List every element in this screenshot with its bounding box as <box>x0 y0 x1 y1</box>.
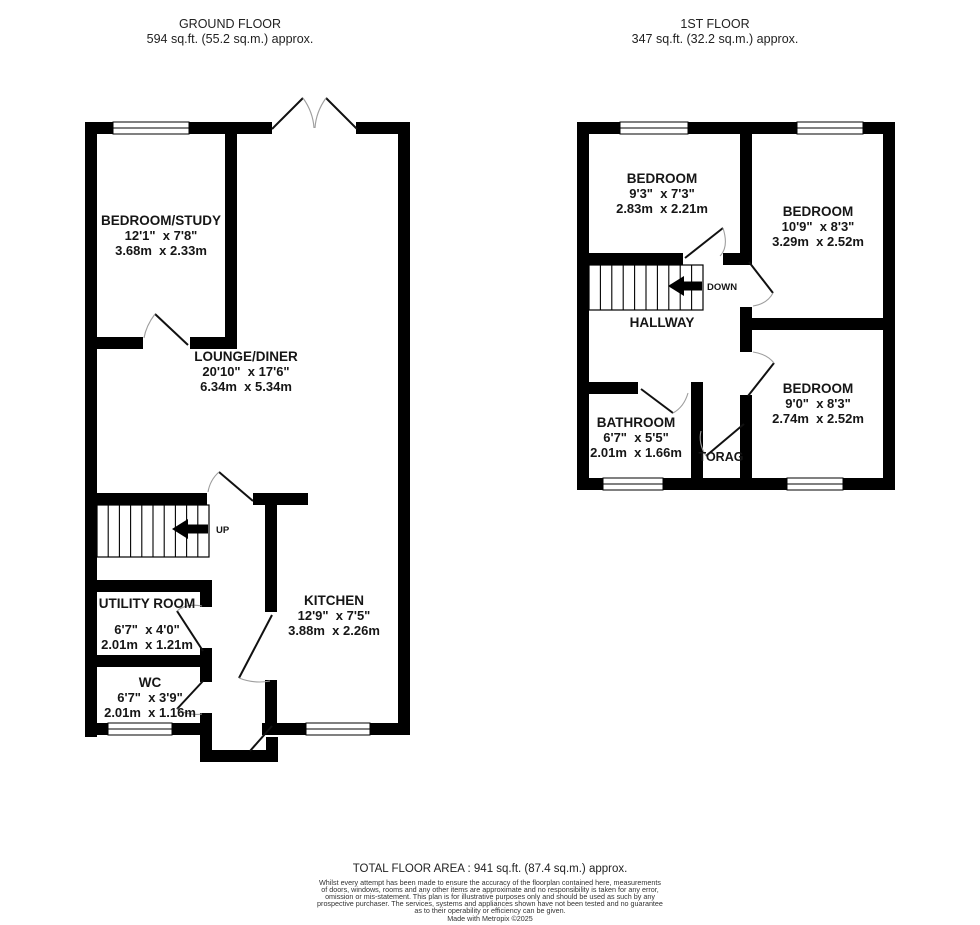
room-name: BEDROOM <box>783 204 854 219</box>
room-imperial: 10'9" x 8'3" <box>782 219 855 234</box>
window <box>306 723 370 735</box>
ground-floor-labels: BEDROOM/STUDY 12'1" x 7'8" 3.68m x 2.33m… <box>99 213 380 720</box>
room-metric: 3.88m x 2.26m <box>288 623 380 638</box>
room-name: BEDROOM <box>627 171 698 186</box>
room-name: BEDROOM <box>783 381 854 396</box>
door-swing <box>748 352 774 396</box>
staircase-first <box>589 265 703 310</box>
room-name: WC <box>139 675 162 690</box>
room-label-lounge-diner: LOUNGE/DINER 20'10" x 17'6" 6.34m x 5.34… <box>194 349 298 394</box>
room-metric: 2.01m x 1.21m <box>101 637 193 652</box>
ground-floor-doors <box>144 98 357 751</box>
room-metric: 2.83m x 2.21m <box>616 201 708 216</box>
total-floor-area: TOTAL FLOOR AREA : 941 sq.ft. (87.4 sq.m… <box>0 863 980 875</box>
floorplan-drawing: BEDROOM/STUDY 12'1" x 7'8" 3.68m x 2.33m… <box>0 0 980 925</box>
room-label-bedroom-study: BEDROOM/STUDY 12'1" x 7'8" 3.68m x 2.33m <box>101 213 221 258</box>
room-name: KITCHEN <box>304 593 364 608</box>
room-metric: 2.01m x 1.16m <box>104 705 196 720</box>
hallway-label: HALLWAY <box>630 315 695 330</box>
french-doors <box>272 98 357 129</box>
window <box>787 478 843 490</box>
room-imperial: 6'7" x 3'9" <box>117 690 183 705</box>
floorplan-page: GROUND FLOOR 594 sq.ft. (55.2 sq.m.) app… <box>0 0 980 925</box>
room-imperial: 20'10" x 17'6" <box>202 364 289 379</box>
door-swing <box>749 262 773 306</box>
room-metric: 3.68m x 2.33m <box>115 243 207 258</box>
stairs-up-label: UP <box>216 525 230 536</box>
room-imperial: 6'7" x 5'5" <box>603 430 669 445</box>
room-name: UTILITY ROOM <box>99 596 196 611</box>
window <box>620 122 688 134</box>
door-swing <box>239 615 272 682</box>
window <box>113 122 189 134</box>
first-floor-labels: BEDROOM 9'3" x 7'3" 2.83m x 2.21m BEDROO… <box>590 171 864 464</box>
door-swing <box>144 314 188 345</box>
room-metric: 6.34m x 5.34m <box>200 379 292 394</box>
room-name: BATHROOM <box>597 415 676 430</box>
window <box>108 723 172 735</box>
room-label-wc: WC 6'7" x 3'9" 2.01m x 1.16m <box>104 675 196 720</box>
room-metric: 2.74m x 2.52m <box>772 411 864 426</box>
room-metric: 2.01m x 1.66m <box>590 445 682 460</box>
room-name: BEDROOM/STUDY <box>101 213 221 228</box>
room-imperial: 12'1" x 7'8" <box>125 228 198 243</box>
window <box>603 478 663 490</box>
room-label-bedroom-front: BEDROOM 9'3" x 7'3" 2.83m x 2.21m <box>616 171 708 216</box>
door-swing <box>685 228 725 258</box>
room-metric: 3.29m x 2.52m <box>772 234 864 249</box>
stairs-down-label: DOWN <box>707 282 737 293</box>
room-imperial: 9'3" x 7'3" <box>629 186 695 201</box>
door-swing <box>641 389 688 413</box>
room-imperial: 9'0" x 8'3" <box>785 396 851 411</box>
room-label-bedroom-back: BEDROOM 9'0" x 8'3" 2.74m x 2.52m <box>772 381 864 426</box>
storage-label: TORAG <box>699 450 744 464</box>
credit-text: Made with Metropix ©2025 <box>290 914 690 923</box>
window <box>797 122 863 134</box>
room-imperial: 12'9" x 7'5" <box>298 608 371 623</box>
staircase-ground <box>97 505 209 557</box>
room-label-utility-room: UTILITY ROOM 6'7" x 4'0" 2.01m x 1.21m <box>99 596 196 652</box>
room-imperial: 6'7" x 4'0" <box>114 622 180 637</box>
door-swing <box>208 472 253 501</box>
room-label-bathroom: BATHROOM 6'7" x 5'5" 2.01m x 1.66m <box>590 415 682 460</box>
room-label-kitchen: KITCHEN 12'9" x 7'5" 3.88m x 2.26m <box>288 593 380 638</box>
room-label-bedroom-right: BEDROOM 10'9" x 8'3" 3.29m x 2.52m <box>772 204 864 249</box>
room-name: LOUNGE/DINER <box>194 349 298 364</box>
disclaimer-text: Whilst every attempt has been made to en… <box>290 879 690 914</box>
